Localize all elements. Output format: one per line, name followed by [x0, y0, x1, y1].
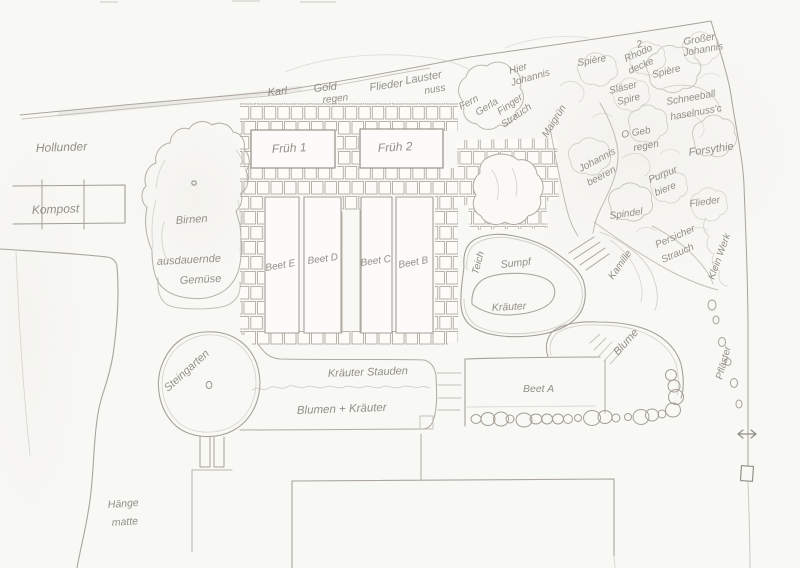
svg-text:Kompost: Kompost: [32, 201, 80, 217]
svg-text:matte: matte: [111, 515, 138, 529]
svg-text:Birnen: Birnen: [175, 213, 208, 227]
svg-text:Hollunder: Hollunder: [36, 139, 89, 155]
svg-text:Beet A: Beet A: [523, 383, 554, 395]
svg-text:Früh 2: Früh 2: [377, 139, 413, 155]
svg-text:Gemüse: Gemüse: [180, 273, 222, 287]
svg-text:Hänge: Hänge: [107, 497, 139, 511]
svg-text:Früh 1: Früh 1: [271, 140, 306, 156]
svg-text:Kräuter: Kräuter: [492, 300, 528, 314]
svg-text:Karl: Karl: [267, 85, 288, 99]
